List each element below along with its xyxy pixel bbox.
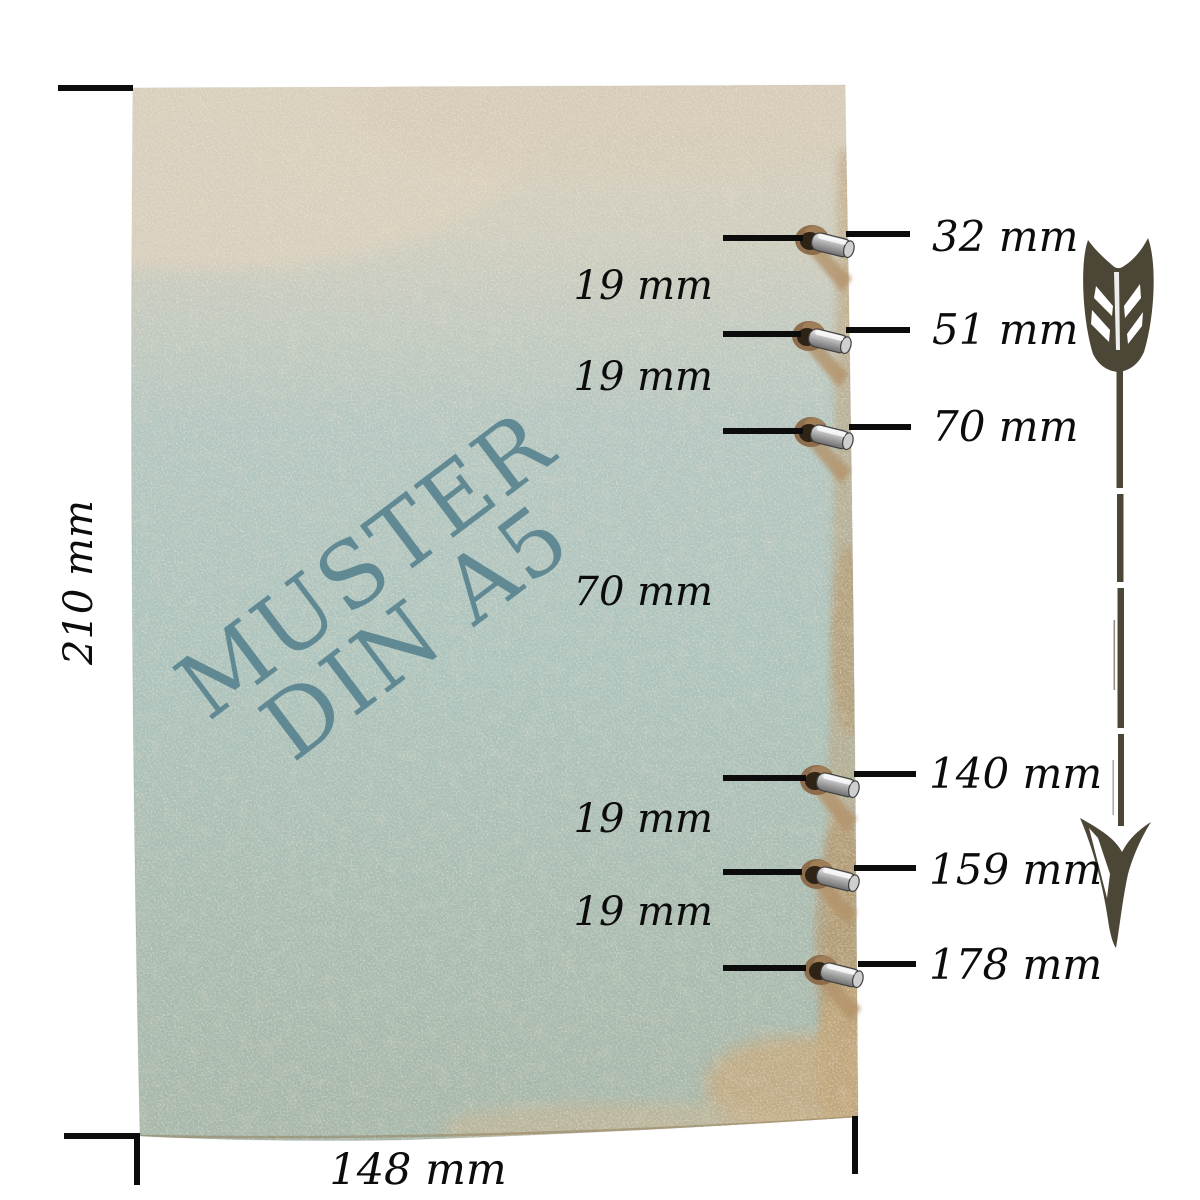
pointer-line xyxy=(854,771,916,777)
sheet-height-label: 210 mm xyxy=(53,505,105,665)
hole-spacing-label: 19 mm xyxy=(555,261,713,311)
hole-spacing-diagram: MUSTER DIN A5 32 mm 51 mm 70 mm 140 mm 1… xyxy=(0,0,1200,1200)
down-arrow-icon xyxy=(1080,238,1154,948)
pointer-line xyxy=(854,865,916,871)
pointer-line xyxy=(723,869,802,875)
dimension-tick-top-left xyxy=(58,85,133,91)
pointer-line xyxy=(723,331,801,337)
pointer-line xyxy=(846,327,910,333)
hole-distance-label: 70 mm xyxy=(932,401,1078,453)
hole-distance-label: 159 mm xyxy=(929,844,1102,896)
hole-spacing-label: 19 mm xyxy=(555,887,713,937)
dimension-tick-bottom-right xyxy=(852,1116,858,1174)
hole-spacing-label: 70 mm xyxy=(555,567,713,617)
hole-distance-label: 51 mm xyxy=(932,304,1078,356)
pointer-line xyxy=(858,961,916,967)
pointer-line xyxy=(723,775,806,781)
pointer-line xyxy=(849,424,911,430)
hole-distance-label: 140 mm xyxy=(929,748,1102,800)
pointer-line xyxy=(723,235,803,241)
hole-spacing-label: 19 mm xyxy=(555,794,713,844)
pointer-line xyxy=(846,231,910,237)
dimension-tick-bottom-left-h xyxy=(64,1133,140,1139)
hole-distance-label: 178 mm xyxy=(929,939,1102,991)
sheet-width-label: 148 mm xyxy=(318,1144,518,1196)
hole-distance-label: 32 mm xyxy=(932,211,1078,263)
pointer-line xyxy=(723,428,803,434)
hole-spacing-label: 19 mm xyxy=(555,352,713,402)
dimension-tick-bottom-left-v xyxy=(134,1133,140,1185)
pointer-line xyxy=(723,965,806,971)
